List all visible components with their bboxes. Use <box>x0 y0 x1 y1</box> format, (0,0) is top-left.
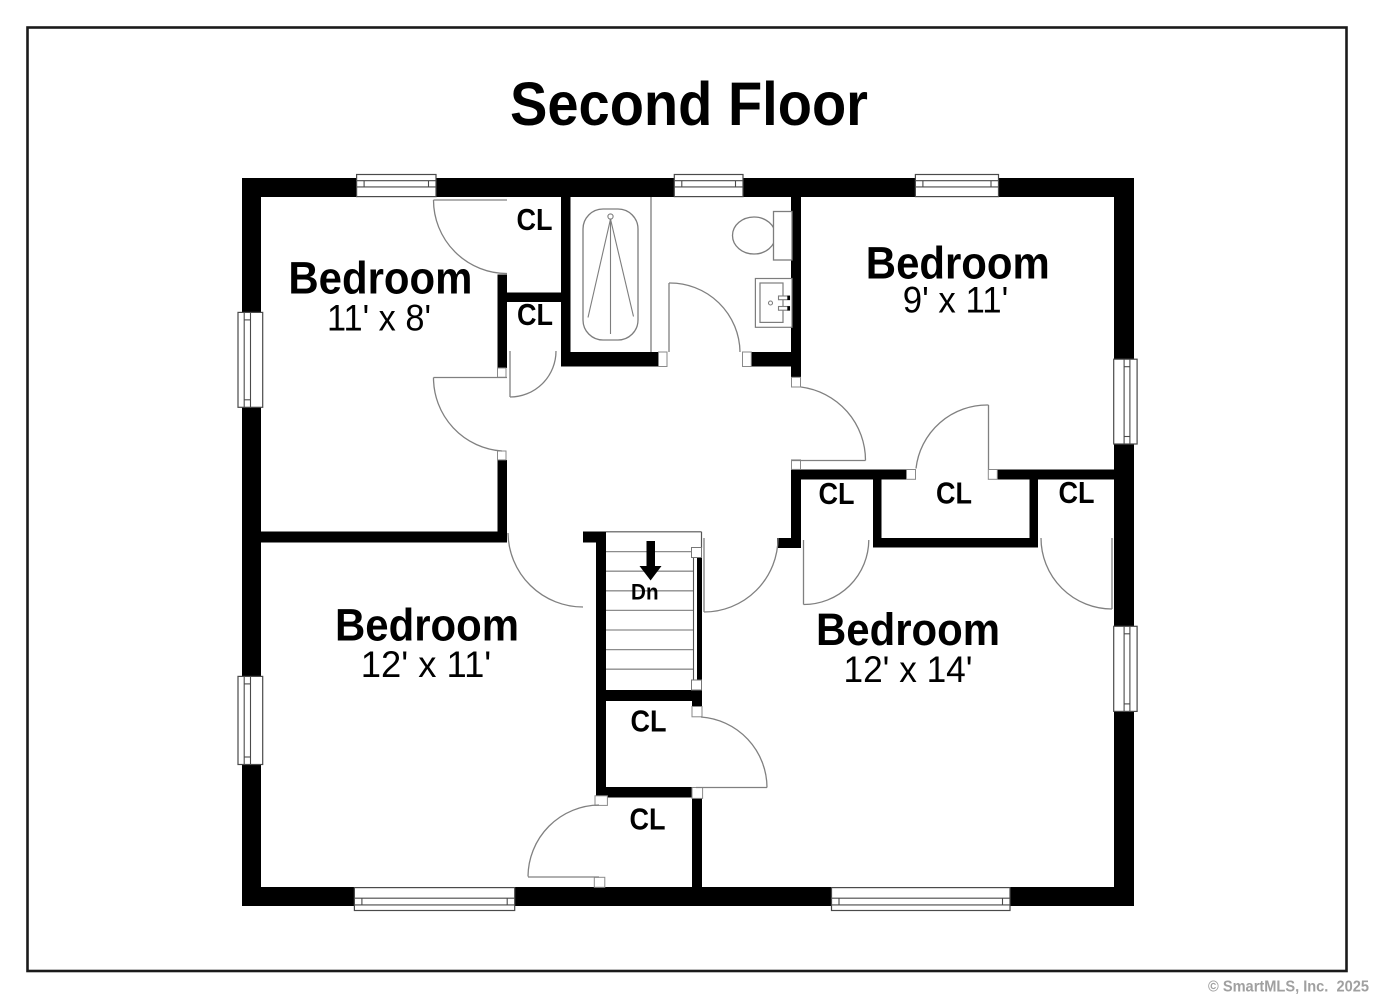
svg-text:12' x 11': 12' x 11' <box>361 644 492 685</box>
svg-text:Bedroom: Bedroom <box>816 604 1000 655</box>
svg-text:12' x 14': 12' x 14' <box>844 649 973 690</box>
svg-text:11' x 8': 11' x 8' <box>327 298 431 339</box>
svg-text:Bedroom: Bedroom <box>335 600 519 651</box>
svg-text:CL: CL <box>631 704 667 739</box>
svg-text:CL: CL <box>936 476 972 511</box>
svg-text:CL: CL <box>517 297 553 332</box>
svg-text:CL: CL <box>1059 475 1095 510</box>
svg-text:© SmartMLS, Inc. 2025: © SmartMLS, Inc. 2025 <box>1208 979 1369 996</box>
svg-text:CL: CL <box>630 802 666 837</box>
svg-text:CL: CL <box>517 202 553 237</box>
svg-text:Bedroom: Bedroom <box>288 253 472 304</box>
svg-text:Dn: Dn <box>631 580 659 605</box>
svg-text:CL: CL <box>819 476 855 511</box>
svg-text:9' x 11': 9' x 11' <box>903 280 1009 321</box>
svg-text:Second Floor: Second Floor <box>510 70 868 138</box>
